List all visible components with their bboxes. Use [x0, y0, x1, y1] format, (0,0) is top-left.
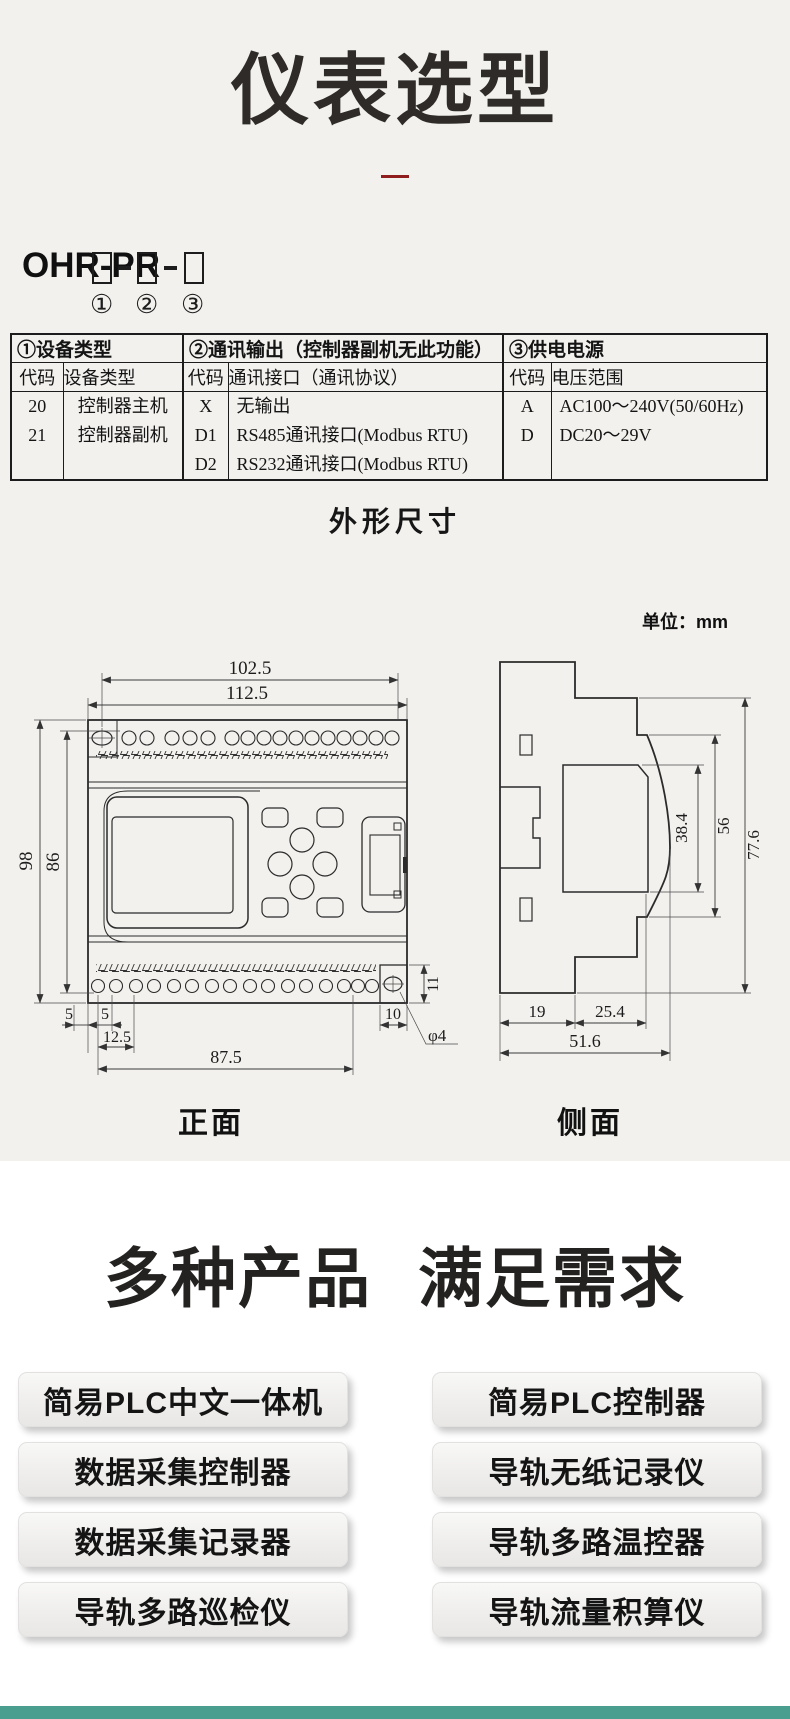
selection-table: ①设备类型 ②通讯输出（控制器副机无此功能） ③供电电源 代码 设备类型 代码 … — [10, 333, 768, 481]
power-code-d: D — [504, 421, 551, 450]
product-spec-page: 仪表选型 OHR-PR ① ② ③ ①设备类型 ②通讯输出（控制器副机无此功能）… — [0, 0, 790, 1719]
model-slot-number-1: ① — [90, 290, 113, 320]
product-button-rail-flow-totalizer[interactable]: 导轨流量积算仪 — [432, 1582, 762, 1637]
product-button-rail-paperless-recorder[interactable]: 导轨无纸记录仪 — [432, 1442, 762, 1497]
voltage-ac: AC100～240V(50/60Hz) — [552, 392, 767, 421]
voltage-dc: DC20～29V — [552, 421, 767, 450]
front-dim-5a: 5 — [65, 1006, 73, 1023]
products-heading-left: 多种产品 — [104, 1226, 372, 1320]
col-header-code-3: 代码 — [503, 363, 551, 392]
device-type-blank — [64, 450, 183, 479]
front-dim-98: 98 — [16, 852, 37, 871]
side-dim-56: 56 — [714, 818, 733, 835]
product-buttons-right: 简易PLC控制器 导轨无纸记录仪 导轨多路温控器 导轨流量积算仪 — [432, 1372, 762, 1637]
model-slot-box-1 — [92, 252, 112, 284]
product-button-data-acquisition-recorder[interactable]: 数据采集记录器 — [18, 1512, 348, 1567]
comm-code-d1: D1 — [184, 421, 228, 450]
front-connector — [362, 817, 407, 912]
product-button-plc-controller[interactable]: 简易PLC控制器 — [432, 1372, 762, 1427]
group-header-comm-output: ②通讯输出（控制器副机无此功能） — [183, 334, 503, 363]
side-dim-38-4: 38.4 — [672, 813, 691, 843]
table-group-header-row: ①设备类型 ②通讯输出（控制器副机无此功能） ③供电电源 — [11, 334, 767, 363]
group-header-power-supply: ③供电电源 — [503, 334, 767, 363]
dimensions-section-title: 外形尺寸 — [0, 500, 790, 540]
front-dim-87-5: 87.5 — [210, 1047, 242, 1067]
col-header-voltage-range: 电压范围 — [551, 363, 767, 392]
col-header-comm-interface: 通讯接口（通讯协议） — [228, 363, 503, 392]
side-dim-25-4: 25.4 — [595, 1002, 625, 1021]
products-heading: 多种产品 满足需求 — [0, 1226, 790, 1320]
cell-comm-codes: X D1 D2 — [183, 392, 228, 481]
page-title: 仪表选型 — [0, 28, 790, 140]
side-dim-19: 19 — [529, 1002, 546, 1021]
table-sub-header-row: 代码 设备类型 代码 通讯接口（通讯协议） 代码 电压范围 — [11, 363, 767, 392]
voltage-blank — [552, 450, 767, 479]
front-dim-86: 86 — [43, 853, 64, 872]
cell-device-codes: 20 21 — [11, 392, 63, 481]
front-terminals-bottom — [92, 964, 379, 993]
model-dash-1 — [118, 266, 131, 270]
product-button-plc-all-in-one[interactable]: 简易PLC中文一体机 — [18, 1372, 348, 1427]
front-dim-102-5: 102.5 — [229, 658, 272, 679]
front-display — [104, 791, 260, 942]
model-dash-2 — [164, 266, 177, 270]
front-view-label: 正面 — [178, 1098, 244, 1142]
front-dim-112-5: 112.5 — [226, 683, 268, 704]
side-dim-51-6: 51.6 — [569, 1031, 601, 1051]
cell-power-codes: A D — [503, 392, 551, 481]
front-dim-5b: 5 — [101, 1006, 109, 1023]
cell-device-types: 控制器主机 控制器副机 — [63, 392, 183, 481]
comm-code-x: X — [184, 392, 228, 421]
cell-comm-interfaces: 无输出 RS485通讯接口(Modbus RTU) RS232通讯接口(Modb… — [228, 392, 503, 481]
model-slot-box-2 — [137, 252, 157, 284]
comm-rs232: RS232通讯接口(Modbus RTU) — [229, 450, 503, 479]
col-header-code-2: 代码 — [183, 363, 228, 392]
power-code-a: A — [504, 392, 551, 421]
table-body-row: 20 21 控制器主机 控制器副机 X D1 D2 无输出 RS485通讯接口(… — [11, 392, 767, 481]
group-header-device-type: ①设备类型 — [11, 334, 183, 363]
side-body-outline — [500, 662, 670, 993]
comm-rs485: RS485通讯接口(Modbus RTU) — [229, 421, 503, 450]
device-type-master: 控制器主机 — [64, 392, 183, 421]
device-code-21: 21 — [12, 421, 63, 450]
products-heading-right: 满足需求 — [418, 1226, 686, 1320]
comm-none: 无输出 — [229, 392, 503, 421]
model-slot-number-2: ② — [135, 290, 158, 320]
front-terminals-top — [96, 731, 399, 759]
product-button-rail-multi-channel-temp-controller[interactable]: 导轨多路温控器 — [432, 1512, 762, 1567]
side-dimensions: 38.4 56 77.6 19 25.4 51.6 — [500, 698, 763, 1061]
product-button-rail-multi-channel-inspection[interactable]: 导轨多路巡检仪 — [18, 1582, 348, 1637]
title-accent-divider — [381, 175, 409, 178]
side-view-label: 侧面 — [557, 1098, 623, 1142]
front-dim-12-5: 12.5 — [103, 1029, 131, 1046]
product-button-data-acquisition-controller[interactable]: 数据采集控制器 — [18, 1442, 348, 1497]
cell-voltage-ranges: AC100～240V(50/60Hz) DC20～29V — [551, 392, 767, 481]
side-view-drawing: 38.4 56 77.6 19 25.4 51.6 — [440, 595, 780, 1080]
footer-accent-bar — [0, 1706, 790, 1719]
device-type-slave: 控制器副机 — [64, 421, 183, 450]
col-header-code-1: 代码 — [11, 363, 63, 392]
comm-code-d2: D2 — [184, 450, 228, 479]
side-dim-77-6: 77.6 — [744, 830, 763, 860]
model-slot-box-3 — [184, 252, 204, 284]
model-slot-number-3: ③ — [181, 290, 204, 320]
power-code-blank — [504, 450, 551, 479]
front-dim-10: 10 — [385, 1006, 401, 1023]
product-buttons-left: 简易PLC中文一体机 数据采集控制器 数据采集记录器 导轨多路巡检仪 — [18, 1372, 348, 1637]
device-code-20: 20 — [12, 392, 63, 421]
front-keypad — [262, 808, 343, 917]
col-header-device-type: 设备类型 — [63, 363, 183, 392]
front-view-drawing: 102.5 112.5 98 86 5 5 — [10, 595, 460, 1080]
device-code-blank — [12, 450, 63, 479]
